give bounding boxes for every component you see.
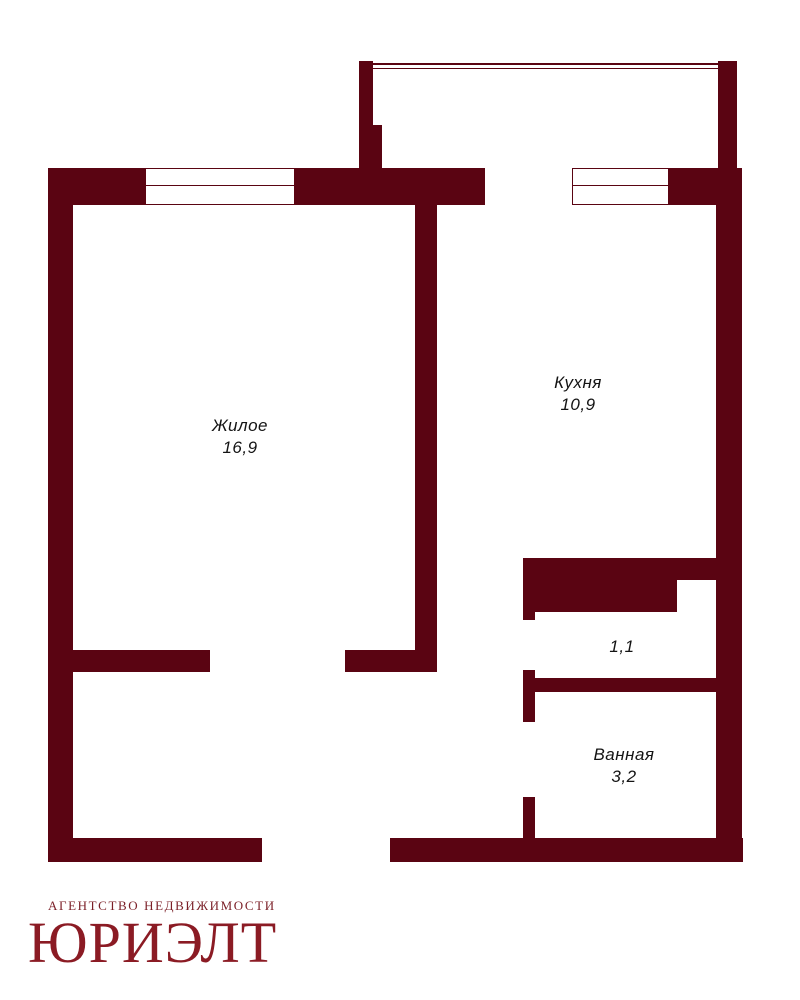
living-room-area: 16,9 [160, 437, 320, 459]
wall-living-bottom-left [73, 650, 210, 672]
wall-top-living-right [295, 168, 485, 205]
wall-right-outer [716, 205, 742, 862]
wall-bottom-left [48, 838, 262, 862]
wall-kitchen-hall-block-ext [677, 558, 717, 580]
wall-hall-bath-divider [523, 678, 717, 692]
window-kitchen [572, 168, 669, 205]
bathroom-area: 3,2 [544, 766, 704, 788]
label-living-room: Жилое 16,9 [160, 415, 320, 459]
kitchen-name: Кухня [498, 372, 658, 394]
balcony-wall-right [718, 61, 737, 168]
kitchen-area: 10,9 [498, 394, 658, 416]
wall-hall-left-stub [523, 612, 535, 620]
window-living [145, 168, 295, 205]
wall-top-kitchen-right [669, 168, 742, 205]
balcony-edge-line [373, 63, 718, 69]
floor-plan: Жилое 16,9 Кухня 10,9 1,1 Ванная 3,2 АГЕ… [0, 0, 800, 1000]
label-kitchen: Кухня 10,9 [498, 372, 658, 416]
bathroom-name: Ванная [544, 744, 704, 766]
wall-bottom-right [390, 838, 743, 862]
wall-top-living-left [48, 168, 145, 205]
window-sash [146, 185, 294, 186]
label-bathroom: Ванная 3,2 [544, 744, 704, 788]
wall-left-outer [48, 168, 73, 862]
wall-living-kitchen-divider [415, 205, 437, 650]
wall-living-bottom-right [345, 650, 437, 672]
window-sash [573, 185, 668, 186]
agency-logo: АГЕНТСТВО НЕДВИЖИМОСТИ ЮРИЭЛТ [28, 898, 328, 971]
balcony-wall-left-thin [359, 61, 373, 125]
hallway-area: 1,1 [562, 636, 682, 658]
agency-logo-name: ЮРИЭЛТ [28, 915, 328, 971]
living-room-name: Жилое [160, 415, 320, 437]
label-hallway: 1,1 [562, 636, 682, 658]
balcony-wall-left-wide [359, 125, 382, 168]
wall-bath-left-lower [523, 797, 535, 838]
wall-kitchen-hall-block [523, 558, 677, 612]
